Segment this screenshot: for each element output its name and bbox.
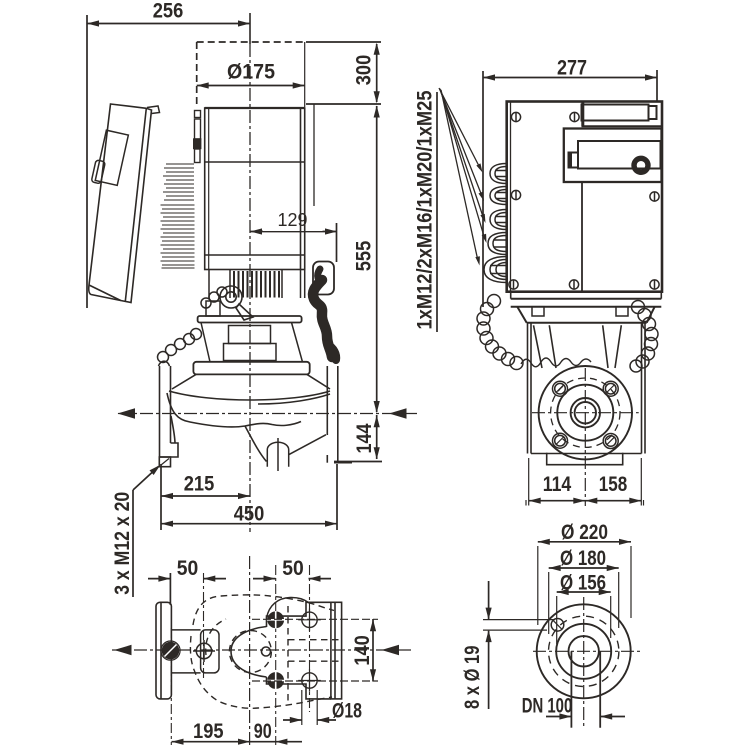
svg-text:114: 114 xyxy=(543,473,572,496)
svg-text:158: 158 xyxy=(599,473,628,496)
svg-text:3 x M12 x 20: 3 x M12 x 20 xyxy=(111,492,134,595)
svg-text:277: 277 xyxy=(557,57,587,80)
svg-text:Ø18: Ø18 xyxy=(332,700,362,723)
svg-text:DN 100: DN 100 xyxy=(522,695,573,718)
svg-text:50: 50 xyxy=(282,557,304,580)
svg-text:8 x Ø 19: 8 x Ø 19 xyxy=(461,646,484,710)
svg-text:1xM12/2xM16/1xM20/1xM25: 1xM12/2xM16/1xM20/1xM25 xyxy=(414,90,437,329)
svg-text:256: 256 xyxy=(153,0,184,23)
svg-text:90: 90 xyxy=(254,720,272,743)
svg-text:144: 144 xyxy=(353,423,376,453)
svg-text:215: 215 xyxy=(184,473,215,496)
svg-text:50: 50 xyxy=(177,557,199,580)
svg-text:Ø 180: Ø 180 xyxy=(560,547,606,570)
svg-text:Ø175: Ø175 xyxy=(227,61,275,84)
svg-text:195: 195 xyxy=(193,720,224,743)
svg-text:450: 450 xyxy=(234,503,265,526)
svg-text:140: 140 xyxy=(351,635,374,666)
svg-text:Ø 220: Ø 220 xyxy=(561,521,608,544)
svg-text:129: 129 xyxy=(278,210,308,230)
svg-text:300: 300 xyxy=(353,55,376,86)
svg-text:555: 555 xyxy=(352,240,375,271)
